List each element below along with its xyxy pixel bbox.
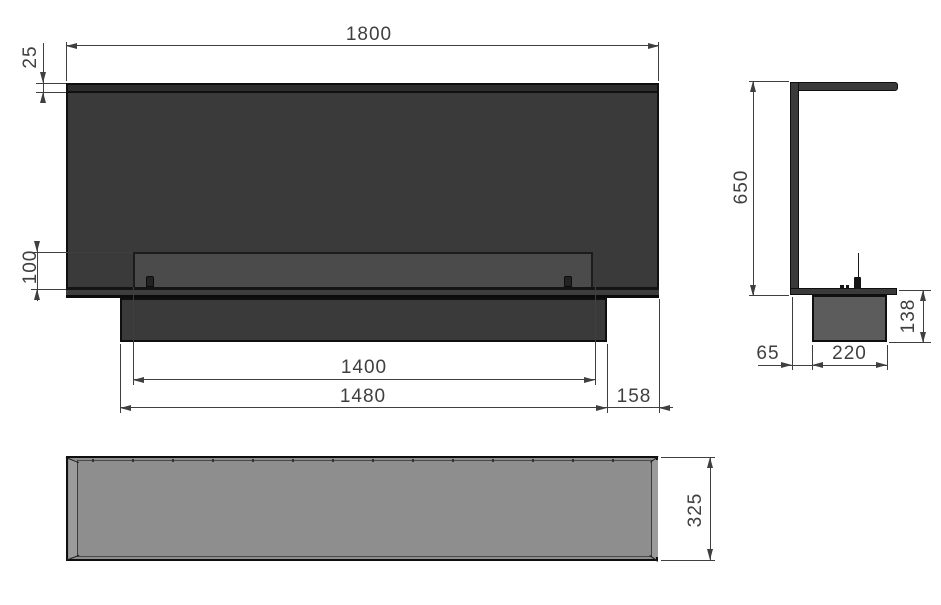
arrowhead <box>648 43 659 49</box>
arrowhead <box>120 405 131 411</box>
burner-knob-detail <box>840 285 844 288</box>
arrowhead <box>584 377 595 383</box>
extension-line <box>661 560 715 561</box>
burner-tab-right <box>564 276 572 287</box>
burner-tab-left <box>146 276 154 287</box>
arrowhead <box>707 549 713 560</box>
arrowhead <box>920 332 926 343</box>
dimension-line <box>710 457 711 561</box>
dim-label-top-frame-height: 25 <box>21 37 41 77</box>
extension-line <box>887 345 888 370</box>
extension-line <box>120 344 121 413</box>
dim-label-opening-height: 100 <box>21 237 41 297</box>
dim-label-base-box-depth: 220 <box>812 344 887 364</box>
arrowhead <box>750 81 756 92</box>
dimension-line <box>66 45 659 46</box>
dim-label-overall-height: 650 <box>732 157 752 217</box>
burner-knob-detail <box>846 285 849 288</box>
dim-label-back-offset: 65 <box>738 344 798 364</box>
side-top-bar <box>790 82 898 91</box>
extension-line <box>595 287 596 385</box>
burner-opening <box>133 252 593 287</box>
side-back-panel <box>790 82 799 295</box>
dimension-line <box>133 379 595 380</box>
arrowhead <box>920 290 926 301</box>
top-view-seam-ticks <box>92 459 652 462</box>
dim-label-base-length: 1480 <box>323 387 403 407</box>
dim-label-burner-length: 1400 <box>324 358 404 378</box>
top-view-panel <box>66 456 658 561</box>
igniter-body <box>854 277 861 289</box>
extension-line <box>36 83 66 84</box>
arrowhead <box>750 285 756 296</box>
dimension-line <box>120 407 607 408</box>
extension-line <box>133 287 134 385</box>
dim-label-right-offset: 158 <box>604 387 664 407</box>
arrowhead <box>133 377 144 383</box>
front-bottom-lip <box>66 287 659 298</box>
top-view-right-edge-face <box>651 460 658 557</box>
arrowhead <box>40 92 46 103</box>
front-top-frame-strip <box>66 83 659 93</box>
arrowhead <box>707 457 713 468</box>
extension-line <box>31 252 133 253</box>
igniter-rod <box>858 253 859 278</box>
front-base-box <box>120 298 607 342</box>
side-base-box <box>812 295 887 342</box>
side-bottom-bar <box>790 288 897 295</box>
arrowhead <box>66 43 77 49</box>
dim-label-overall-depth: 325 <box>686 480 706 540</box>
dimension-line <box>753 81 754 296</box>
dim-label-overall-width: 1800 <box>329 25 409 45</box>
dim-label-base-box-height: 138 <box>899 286 919 346</box>
top-view-inner-bottom-line <box>78 556 651 557</box>
top-view-left-edge-face <box>69 460 78 557</box>
fireplace-technical-drawing: 1800 25 100 1400 1480 158 <box>0 0 941 605</box>
